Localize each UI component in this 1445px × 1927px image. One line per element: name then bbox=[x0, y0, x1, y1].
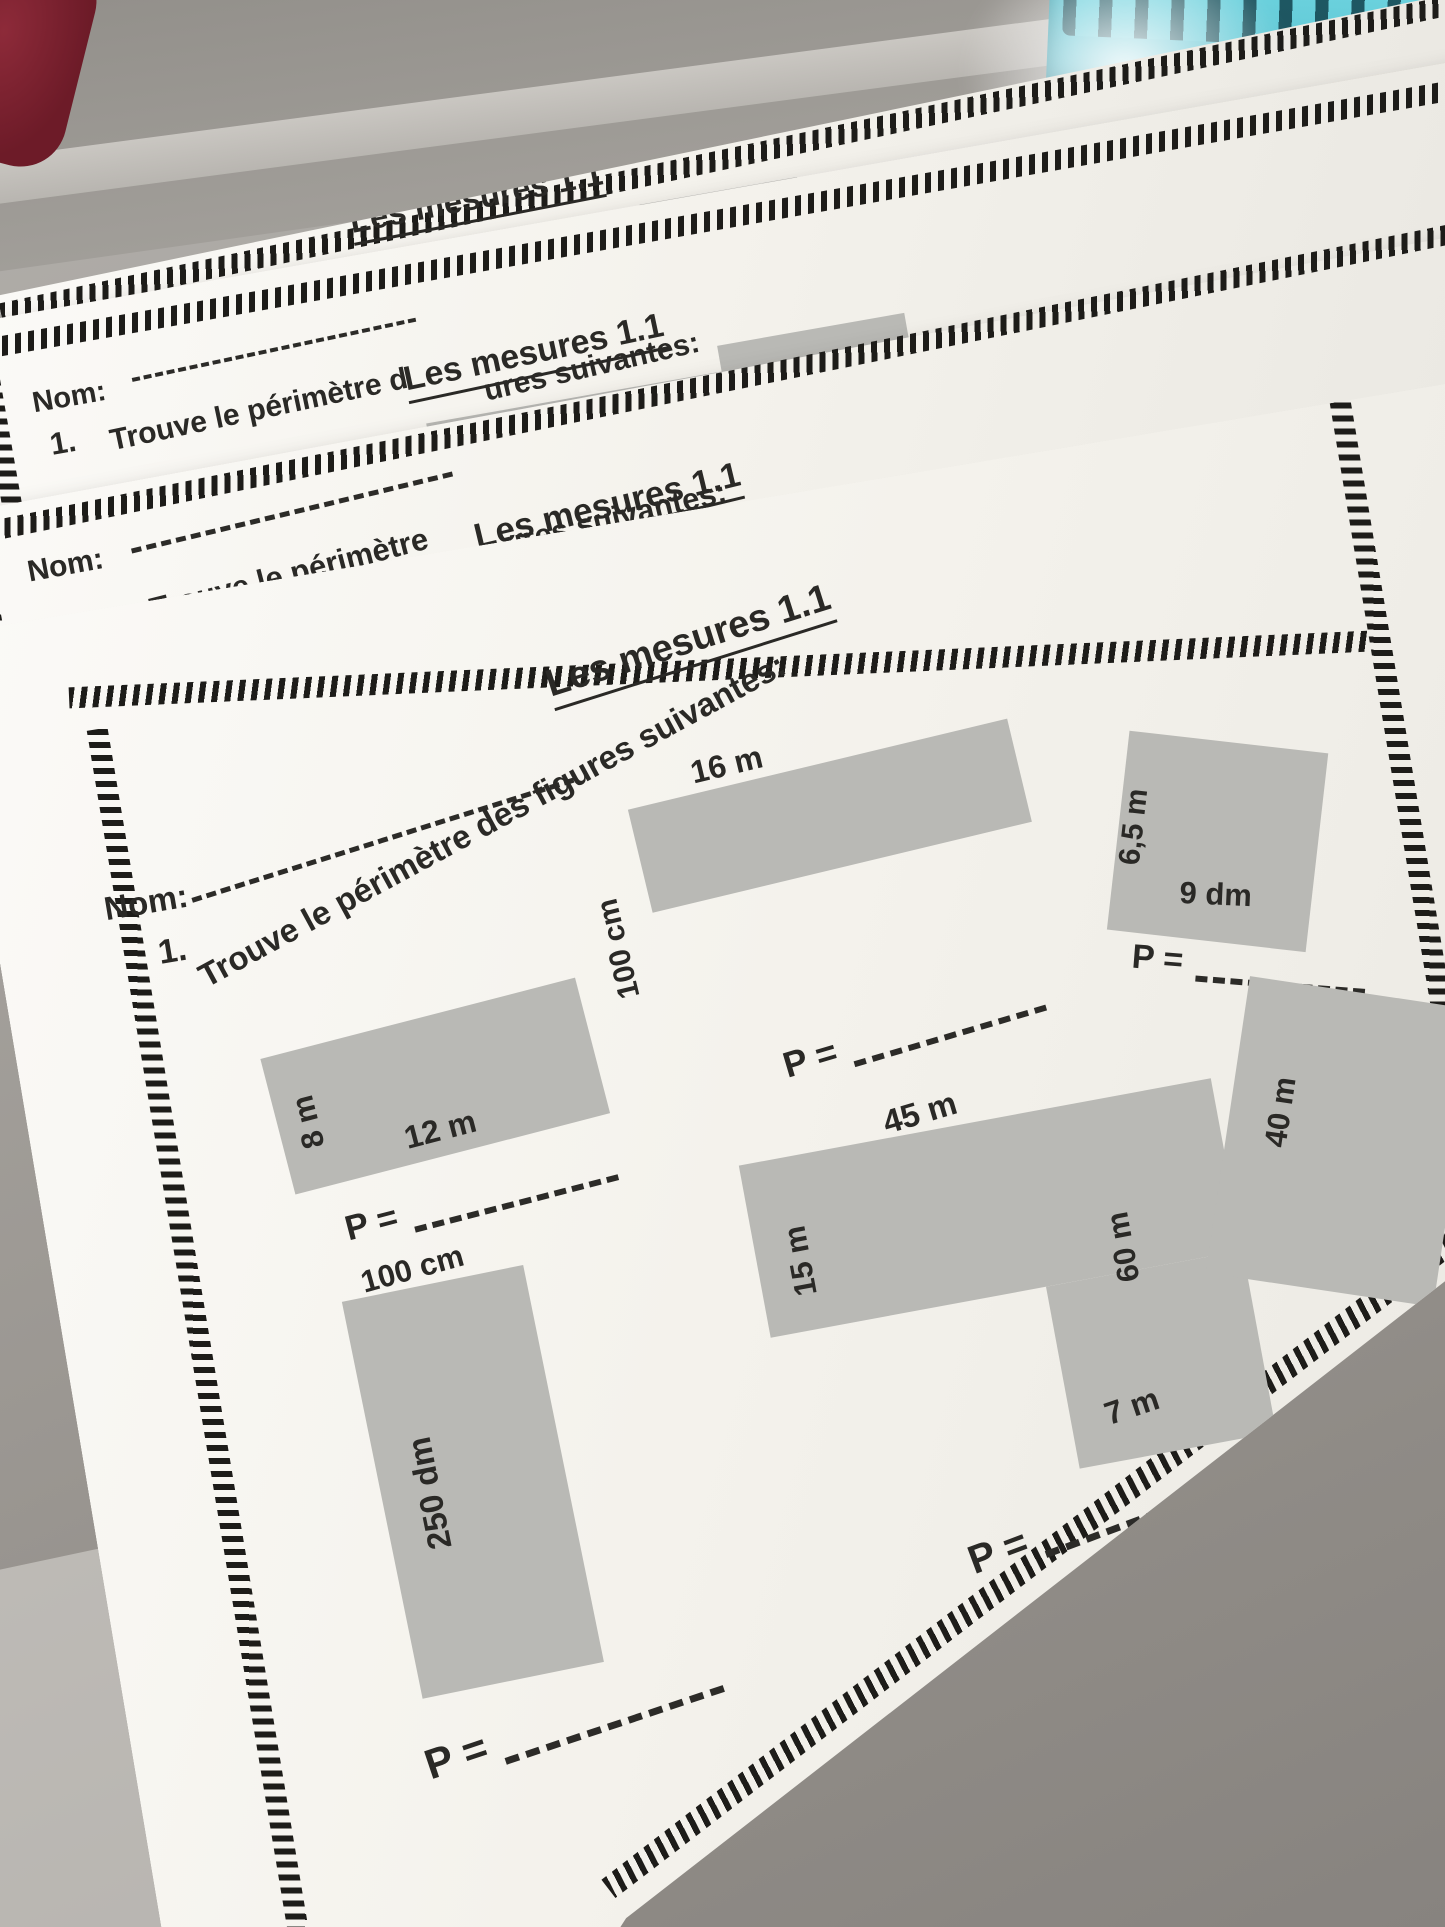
name-label: Nom: bbox=[25, 542, 107, 589]
name-label: Nom: bbox=[30, 375, 109, 420]
perimeter-answer: P = bbox=[778, 970, 1047, 1086]
figure-rect-100x250: 100 cm 250 dm P = bbox=[331, 1214, 737, 1823]
answer-blank bbox=[854, 1004, 1047, 1067]
photo-scene: Nom: Les mesures 1.1 1. Trouve le périmè… bbox=[0, 0, 1445, 1927]
answer-blank bbox=[505, 1685, 725, 1765]
figure-square-40: 40 m 10 bbox=[1201, 976, 1445, 1344]
figure-bottom-label: 9 dm bbox=[1179, 875, 1253, 914]
question-number: 1. bbox=[47, 423, 79, 463]
figure-shape bbox=[628, 719, 1032, 913]
figure-shape bbox=[342, 1265, 604, 1699]
question-number: 1. bbox=[155, 930, 189, 973]
answer-blank bbox=[1045, 1471, 1263, 1558]
worksheet-front: Nom: Les mesures 1.1 1. Trouve le périmè… bbox=[0, 382, 1445, 1927]
figure-shape bbox=[1206, 976, 1445, 1307]
figure-square-65x9: 6,5 m 9 dm P = bbox=[1100, 731, 1368, 1016]
figure-rect-100x16: 16 m 100 cm P = bbox=[622, 687, 1114, 1135]
